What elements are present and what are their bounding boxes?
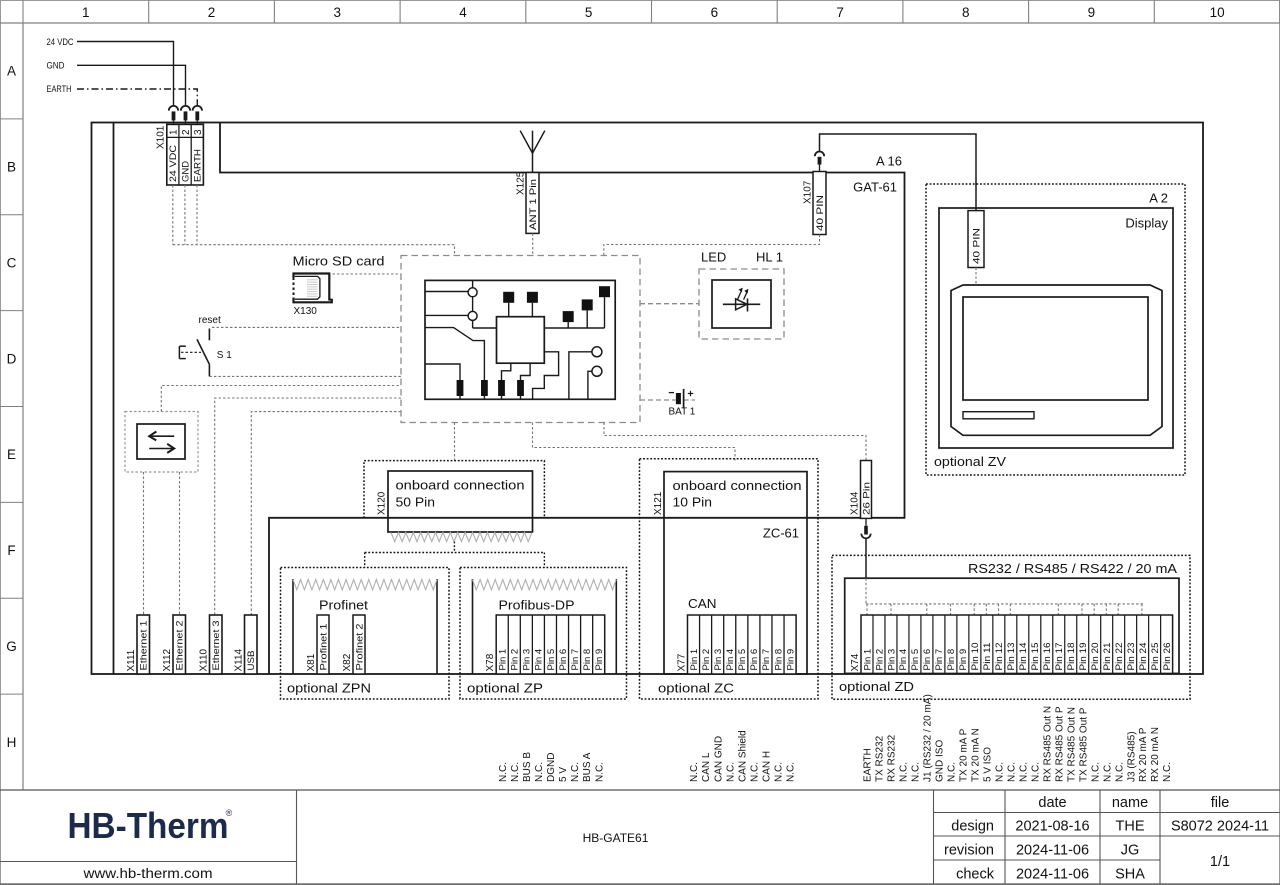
svg-text:5 V: 5 V xyxy=(558,767,569,782)
svg-text:Pin 19: Pin 19 xyxy=(1078,643,1089,671)
svg-text:10 Pin: 10 Pin xyxy=(673,495,713,510)
svg-text:7: 7 xyxy=(836,5,844,20)
svg-text:N.C.: N.C. xyxy=(1030,762,1041,782)
svg-text:X101: X101 xyxy=(156,125,167,149)
svg-text:N.C.: N.C. xyxy=(570,762,581,782)
svg-text:J1 (RS232 / 20 mA): J1 (RS232 / 20 mA) xyxy=(923,694,934,782)
svg-text:TX RS485 Out N: TX RS485 Out N xyxy=(1066,707,1077,782)
svg-text:Pin 5: Pin 5 xyxy=(910,649,921,671)
svg-text:N.C.: N.C. xyxy=(899,762,910,782)
svg-text:HB-GATE61: HB-GATE61 xyxy=(583,831,649,845)
svg-text:Pin 2: Pin 2 xyxy=(701,649,712,671)
svg-text:X81: X81 xyxy=(306,653,317,671)
svg-text:X104: X104 xyxy=(850,491,861,515)
svg-text:N.C.: N.C. xyxy=(534,762,545,782)
svg-text:Pin 17: Pin 17 xyxy=(1054,643,1065,671)
svg-text:N.C.: N.C. xyxy=(498,762,509,782)
svg-text:2024-11-06: 2024-11-06 xyxy=(1016,867,1089,883)
svg-text:TX RS485 Out P: TX RS485 Out P xyxy=(1078,707,1089,782)
svg-text:www.hb-therm.com: www.hb-therm.com xyxy=(82,866,212,881)
svg-text:TX 20 mA P: TX 20 mA P xyxy=(959,728,970,782)
svg-text:2021-08-16: 2021-08-16 xyxy=(1015,819,1089,835)
svg-text:optional ZV: optional ZV xyxy=(934,454,1006,469)
svg-text:Pin 3: Pin 3 xyxy=(886,649,897,671)
svg-text:50 Pin: 50 Pin xyxy=(396,494,436,509)
svg-text:2024-11-06: 2024-11-06 xyxy=(1016,843,1089,859)
svg-text:N.C.: N.C. xyxy=(1090,762,1101,782)
svg-text:BUS B: BUS B xyxy=(522,752,533,782)
svg-text:Pin 26: Pin 26 xyxy=(1162,643,1173,671)
svg-text:GND: GND xyxy=(47,61,65,71)
svg-text:X74: X74 xyxy=(850,653,861,671)
svg-text:EARTH: EARTH xyxy=(47,84,72,94)
svg-text:RX RS232: RX RS232 xyxy=(887,734,898,782)
svg-text:2: 2 xyxy=(208,5,216,20)
svg-text:Pin 21: Pin 21 xyxy=(1102,643,1113,671)
svg-text:N.C.: N.C. xyxy=(750,762,761,782)
svg-text:Profinet 2: Profinet 2 xyxy=(354,624,365,671)
svg-text:TX RS232: TX RS232 xyxy=(875,735,886,782)
svg-text:Pin 9: Pin 9 xyxy=(594,649,605,671)
svg-text:X130: X130 xyxy=(294,306,318,317)
svg-text:Pin 1: Pin 1 xyxy=(862,649,873,671)
svg-text:G: G xyxy=(6,639,17,654)
svg-text:LED: LED xyxy=(701,250,726,265)
svg-text:J3 (RS485): J3 (RS485) xyxy=(1126,731,1137,782)
svg-text:F: F xyxy=(7,543,15,558)
svg-text:HL 1: HL 1 xyxy=(756,250,783,265)
svg-text:revision: revision xyxy=(944,843,994,859)
svg-text:4: 4 xyxy=(459,5,467,20)
svg-text:ANT 1 Pin: ANT 1 Pin xyxy=(528,179,539,230)
svg-text:5: 5 xyxy=(585,5,593,20)
svg-text:1: 1 xyxy=(82,5,90,20)
svg-text:Pin 22: Pin 22 xyxy=(1114,643,1125,671)
svg-text:EARTH: EARTH xyxy=(863,748,874,782)
svg-text:JG: JG xyxy=(1121,843,1140,859)
svg-text:TX 20 mA N: TX 20 mA N xyxy=(971,728,982,782)
svg-text:Display: Display xyxy=(1125,216,1168,231)
svg-text:40 PIN: 40 PIN xyxy=(815,195,826,231)
svg-text:optional ZPN: optional ZPN xyxy=(287,681,371,696)
svg-text:Pin 24: Pin 24 xyxy=(1138,643,1149,671)
svg-text:Pin 1: Pin 1 xyxy=(689,649,700,671)
svg-text:®: ® xyxy=(226,808,233,818)
svg-text:RX RS485 Out P: RX RS485 Out P xyxy=(1054,706,1065,782)
svg-text:Pin 9: Pin 9 xyxy=(785,649,796,671)
svg-text:X111: X111 xyxy=(126,649,137,671)
svg-text:Pin 11: Pin 11 xyxy=(982,643,993,671)
svg-text:C: C xyxy=(7,256,17,271)
svg-text:A 16: A 16 xyxy=(876,154,902,169)
svg-text:Ethernet 2: Ethernet 2 xyxy=(175,621,186,671)
svg-text:check: check xyxy=(956,867,995,883)
svg-text:Pin 6: Pin 6 xyxy=(749,649,760,671)
svg-text:Pin 2: Pin 2 xyxy=(874,649,885,671)
svg-text:N.C.: N.C. xyxy=(1162,762,1173,782)
svg-text:Pin 4: Pin 4 xyxy=(534,649,545,671)
svg-text:N.C.: N.C. xyxy=(994,762,1005,782)
svg-text:CAN H: CAN H xyxy=(762,751,773,782)
svg-text:Ethernet 1: Ethernet 1 xyxy=(139,621,150,671)
svg-text:X121: X121 xyxy=(653,491,664,515)
svg-text:BAT 1: BAT 1 xyxy=(669,407,696,418)
svg-text:1: 1 xyxy=(169,129,180,135)
svg-text:Pin 6: Pin 6 xyxy=(922,649,933,671)
svg-text:GND: GND xyxy=(180,161,191,182)
svg-text:Pin 4: Pin 4 xyxy=(898,649,909,671)
svg-text:40 PIN: 40 PIN xyxy=(971,228,982,264)
svg-text:S8072 2024-11: S8072 2024-11 xyxy=(1171,819,1269,835)
svg-text:5 V ISO: 5 V ISO xyxy=(982,747,993,782)
svg-text:X110: X110 xyxy=(199,648,210,671)
svg-text:ZC-61: ZC-61 xyxy=(763,526,799,541)
svg-text:1/1: 1/1 xyxy=(1210,854,1230,870)
svg-text:Pin 7: Pin 7 xyxy=(570,649,581,671)
svg-text:Profinet: Profinet xyxy=(319,598,368,613)
svg-text:N.C.: N.C. xyxy=(911,762,922,782)
svg-text:Pin 3: Pin 3 xyxy=(713,649,724,671)
svg-text:design: design xyxy=(951,819,994,835)
svg-text:N.C.: N.C. xyxy=(1114,762,1125,782)
svg-text:9: 9 xyxy=(1088,5,1096,20)
svg-text:Pin 6: Pin 6 xyxy=(558,649,569,671)
svg-text:Pin 10: Pin 10 xyxy=(970,643,981,671)
svg-text:THE: THE xyxy=(1116,819,1145,835)
svg-text:RX 20 mA N: RX 20 mA N xyxy=(1150,727,1161,782)
svg-text:HB-Therm: HB-Therm xyxy=(68,805,229,846)
svg-text:Pin 15: Pin 15 xyxy=(1030,643,1041,671)
svg-text:Pin 4: Pin 4 xyxy=(725,649,736,671)
svg-text:D: D xyxy=(7,351,17,366)
svg-text:CAN L: CAN L xyxy=(701,752,712,782)
svg-text:SHA: SHA xyxy=(1115,867,1145,883)
svg-text:Profinet 1: Profinet 1 xyxy=(318,624,329,671)
svg-text:optional ZP: optional ZP xyxy=(467,681,543,696)
svg-text:X107: X107 xyxy=(803,180,814,204)
svg-text:B: B xyxy=(7,160,16,175)
svg-text:N.C.: N.C. xyxy=(1006,762,1017,782)
svg-text:Pin 1: Pin 1 xyxy=(498,649,509,671)
svg-text:RS232 / RS485 / RS422 / 20 mA: RS232 / RS485 / RS422 / 20 mA xyxy=(968,561,1177,576)
svg-text:24 VDC: 24 VDC xyxy=(47,37,74,47)
svg-text:optional ZD: optional ZD xyxy=(839,679,914,694)
svg-text:EARTH: EARTH xyxy=(193,149,204,182)
svg-text:Ethernet 3: Ethernet 3 xyxy=(211,621,222,671)
svg-text:N.C.: N.C. xyxy=(594,762,605,782)
svg-text:8: 8 xyxy=(962,5,970,20)
svg-text:BUS A: BUS A xyxy=(582,752,593,782)
svg-text:onboard connection: onboard connection xyxy=(673,478,802,493)
svg-text:GAT-61: GAT-61 xyxy=(853,180,897,195)
svg-text:S 1: S 1 xyxy=(217,350,232,361)
svg-text:3: 3 xyxy=(333,5,341,20)
svg-text:DGND: DGND xyxy=(546,753,557,782)
svg-text:H: H xyxy=(7,735,17,750)
svg-text:X120: X120 xyxy=(377,491,388,515)
svg-text:N.C.: N.C. xyxy=(689,762,700,782)
svg-text:X112: X112 xyxy=(162,648,173,671)
svg-text:Pin 20: Pin 20 xyxy=(1090,643,1101,671)
svg-text:A 2: A 2 xyxy=(1149,191,1168,206)
svg-text:26 Pin: 26 Pin xyxy=(861,482,872,515)
svg-text:Pin 25: Pin 25 xyxy=(1150,643,1161,671)
svg-text:name: name xyxy=(1112,795,1148,811)
svg-text:X114: X114 xyxy=(234,648,245,671)
svg-text:CAN Shield: CAN Shield xyxy=(737,730,748,782)
svg-text:Pin 7: Pin 7 xyxy=(934,649,945,671)
svg-text:Pin 14: Pin 14 xyxy=(1018,643,1029,671)
svg-text:N.C.: N.C. xyxy=(786,762,797,782)
svg-text:Pin 8: Pin 8 xyxy=(773,649,784,671)
svg-text:Pin 5: Pin 5 xyxy=(546,649,557,671)
svg-text:GND ISO: GND ISO xyxy=(935,740,946,782)
svg-text:24 VDC: 24 VDC xyxy=(168,145,179,182)
svg-text:optional ZC: optional ZC xyxy=(658,681,734,696)
svg-text:X77: X77 xyxy=(677,653,688,671)
svg-text:A: A xyxy=(7,64,16,79)
svg-text:Pin 23: Pin 23 xyxy=(1126,643,1137,671)
svg-text:Pin 9: Pin 9 xyxy=(958,649,969,671)
svg-text:N.C.: N.C. xyxy=(510,762,521,782)
svg-text:Pin 16: Pin 16 xyxy=(1042,643,1053,671)
svg-text:Micro SD card: Micro SD card xyxy=(293,254,385,269)
svg-text:USB: USB xyxy=(246,651,257,671)
svg-text:reset: reset xyxy=(199,315,221,326)
svg-text:6: 6 xyxy=(711,5,719,20)
svg-text:N.C.: N.C. xyxy=(774,762,785,782)
svg-text:onboard connection: onboard connection xyxy=(396,478,525,493)
svg-text:X125: X125 xyxy=(516,171,527,195)
svg-text:date: date xyxy=(1038,795,1066,811)
svg-text:E: E xyxy=(7,447,16,462)
svg-text:Pin 8: Pin 8 xyxy=(946,649,957,671)
svg-text:10: 10 xyxy=(1210,5,1225,20)
svg-text:RX RS485 Out N: RX RS485 Out N xyxy=(1042,706,1053,782)
svg-text:Pin 8: Pin 8 xyxy=(582,649,593,671)
svg-text:Pin 7: Pin 7 xyxy=(761,649,772,671)
svg-text:Pin 18: Pin 18 xyxy=(1066,643,1077,671)
svg-text:2: 2 xyxy=(181,129,192,135)
svg-text:N.C.: N.C. xyxy=(1018,762,1029,782)
svg-text:N.C.: N.C. xyxy=(947,762,958,782)
svg-text:Pin 5: Pin 5 xyxy=(737,649,748,671)
svg-text:RX 20 mA P: RX 20 mA P xyxy=(1138,727,1149,782)
svg-text:file: file xyxy=(1211,795,1230,811)
svg-text:X78: X78 xyxy=(485,653,496,671)
svg-text:Pin 13: Pin 13 xyxy=(1006,643,1017,671)
svg-text:CAN GND: CAN GND xyxy=(713,736,724,782)
svg-text:Profibus-DP: Profibus-DP xyxy=(499,598,575,613)
svg-text:Pin 12: Pin 12 xyxy=(994,643,1005,671)
svg-text:N.C.: N.C. xyxy=(725,762,736,782)
svg-text:CAN: CAN xyxy=(688,596,717,611)
svg-text:X82: X82 xyxy=(342,653,353,671)
svg-text:Pin 2: Pin 2 xyxy=(510,649,521,671)
svg-text:N.C.: N.C. xyxy=(1102,762,1113,782)
svg-text:Pin 3: Pin 3 xyxy=(522,649,533,671)
svg-text:3: 3 xyxy=(193,129,204,135)
